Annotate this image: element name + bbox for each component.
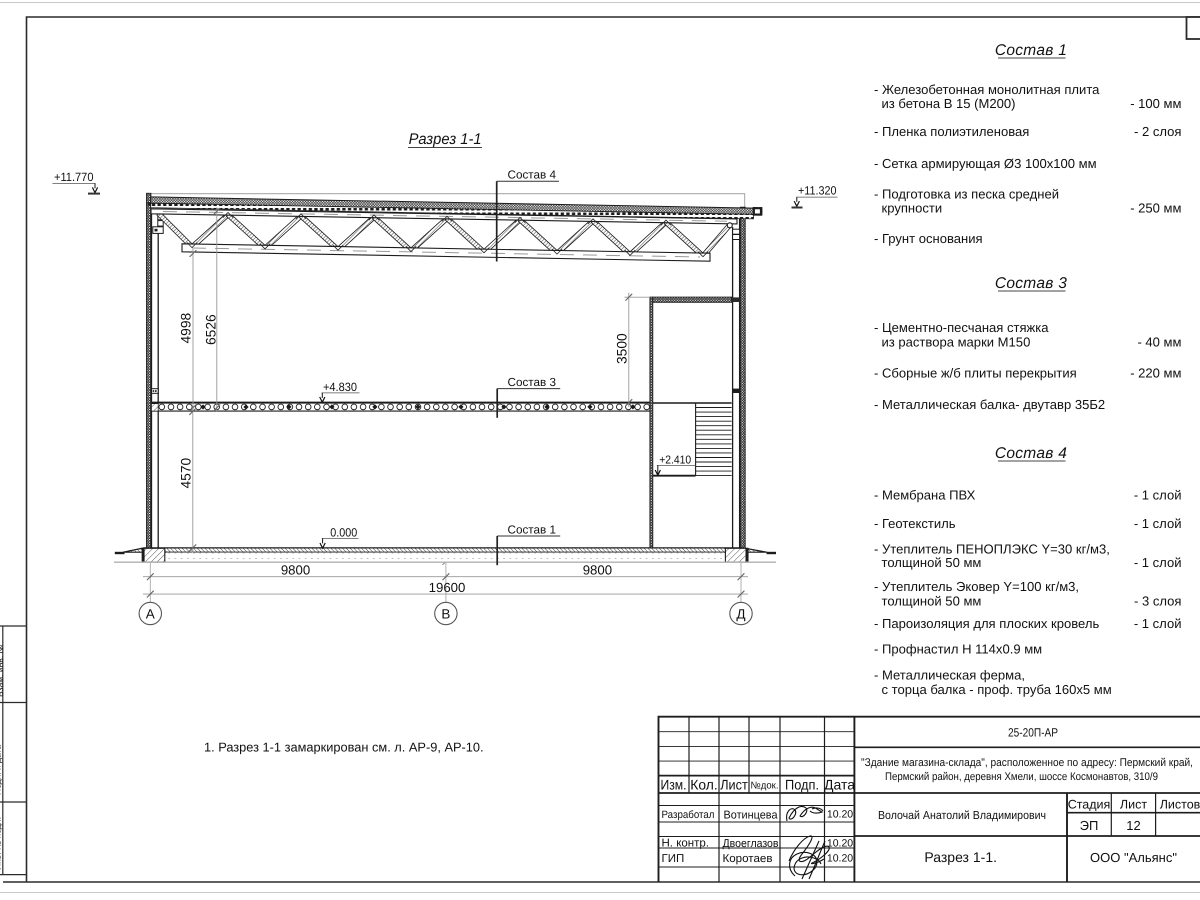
- svg-text:- Цементно-песчаная стяжка: - Цементно-песчаная стяжка: [874, 320, 1049, 335]
- svg-text:Стадия: Стадия: [1068, 798, 1111, 812]
- svg-text:- 220 мм: - 220 мм: [1130, 366, 1181, 381]
- svg-text:- Пленка полиэтиленовая: - Пленка полиэтиленовая: [874, 124, 1029, 139]
- svg-text:ООО "Альянс": ООО "Альянс": [1090, 850, 1177, 865]
- svg-text:12: 12: [1126, 818, 1140, 833]
- svg-text:- Подготовка из песка средней: - Подготовка из песка средней: [874, 187, 1059, 202]
- svg-text:- Железобетонная монолитная п: - Железобетонная монолитная плита: [874, 82, 1100, 97]
- svg-text:Состав 1: Состав 1: [995, 42, 1067, 59]
- svg-text:- Металлическая ферма,: - Металлическая ферма,: [874, 668, 1025, 683]
- svg-text:"Здание магазина-склада", расп: "Здание магазина-склада", расположенное …: [861, 757, 1193, 769]
- svg-text:- Утеплитель Эковер Y=100 кг/м: - Утеплитель Эковер Y=100 кг/м3,: [874, 579, 1079, 594]
- svg-text:- Сетка армирующая Ø3 100х100: - Сетка армирующая Ø3 100х100 мм: [874, 156, 1097, 171]
- svg-text:Двоеглазов: Двоеглазов: [723, 838, 779, 850]
- svg-text:ЭП: ЭП: [1080, 818, 1099, 833]
- svg-text:толщиной 50 мм: толщиной 50 мм: [882, 555, 982, 570]
- svg-text:- Мембрана ПВХ: - Мембрана ПВХ: [874, 488, 976, 503]
- svg-text:3500: 3500: [615, 333, 630, 364]
- svg-text:6526: 6526: [204, 314, 219, 345]
- svg-text:Дата: Дата: [824, 777, 855, 793]
- svg-text:19600: 19600: [429, 580, 466, 595]
- svg-text:- Металлическая балка- двутавр: - Металлическая балка- двутавр 35Б2: [874, 397, 1105, 412]
- svg-text:- 40 мм: - 40 мм: [1137, 334, 1181, 349]
- svg-text:- Геотекстиль: - Геотекстиль: [874, 516, 956, 531]
- svg-text:Лист: Лист: [720, 777, 748, 793]
- svg-text:0.000: 0.000: [330, 525, 357, 539]
- svg-text:10.20: 10.20: [827, 809, 853, 821]
- svg-text:- 3 слоя: - 3 слоя: [1134, 593, 1181, 608]
- svg-text:Состав 1: Состав 1: [508, 523, 556, 536]
- svg-text:- 2 слоя: - 2 слоя: [1134, 124, 1181, 139]
- svg-text:Пермский район, деревня Хмели,: Пермский район, деревня Хмели, шоссе Кос…: [885, 771, 1158, 783]
- svg-text:9800: 9800: [281, 563, 310, 578]
- svg-text:Кол.: Кол.: [690, 777, 718, 793]
- svg-text:- Пароизоляция для плоских кро: - Пароизоляция для плоских кровель: [874, 616, 1099, 631]
- svg-text:Волочай Анатолий Владимирович: Волочай Анатолий Владимирович: [878, 809, 1046, 822]
- svg-text:Лист: Лист: [1120, 798, 1147, 812]
- svg-text:Разработал: Разработал: [662, 809, 715, 821]
- svg-text:В: В: [441, 606, 450, 621]
- svg-text:Состав 4: Состав 4: [508, 169, 557, 182]
- svg-text:Н. контр.: Н. контр.: [662, 838, 709, 850]
- svg-text:крупности: крупности: [882, 201, 943, 216]
- svg-text:Подп. и дата: Подп. и дата: [0, 745, 2, 795]
- svg-text:Коротаев: Коротаев: [723, 853, 773, 865]
- svg-text:- Грунт основания: - Грунт основания: [874, 231, 983, 246]
- svg-text:толщиной 50 мм: толщиной 50 мм: [882, 593, 982, 608]
- svg-text:4570: 4570: [179, 457, 194, 488]
- svg-text:Д: Д: [736, 606, 745, 621]
- svg-text:из раствора марки М150: из раствора марки М150: [882, 334, 1031, 349]
- svg-text:Состав 3: Состав 3: [508, 376, 556, 389]
- svg-text:Инв. № подл.: Инв. № подл.: [0, 817, 2, 870]
- svg-text:+2.410: +2.410: [659, 454, 691, 466]
- svg-text:10.20: 10.20: [827, 838, 853, 850]
- svg-text:- 1 слой: - 1 слой: [1134, 488, 1182, 503]
- svg-text:+11.320: +11.320: [798, 184, 837, 198]
- svg-text:+4.830: +4.830: [323, 380, 357, 394]
- svg-text:Разрез 1-1: Разрез 1-1: [409, 131, 482, 148]
- svg-text:с торца балка - проф. труба 16: с торца балка - проф. труба 160х5 мм: [882, 682, 1112, 697]
- svg-text:10.20: 10.20: [827, 853, 853, 865]
- svg-text:Взам. инв. №: Взам. инв. №: [0, 644, 5, 697]
- svg-text:Изм.: Изм.: [661, 777, 687, 793]
- svg-text:ГИП: ГИП: [662, 853, 685, 865]
- svg-text:4998: 4998: [179, 312, 194, 343]
- svg-text:1. Разрез 1-1 замаркирован см.: 1. Разрез 1-1 замаркирован см. л. АР-9, …: [204, 740, 484, 755]
- svg-text:№док.: №док.: [751, 781, 779, 792]
- svg-text:- 100 мм: - 100 мм: [1130, 96, 1181, 111]
- svg-text:из бетона В 15 (М200): из бетона В 15 (М200): [882, 96, 1016, 111]
- svg-text:- 1 слой: - 1 слой: [1134, 555, 1182, 570]
- svg-text:Вотинцева: Вотинцева: [724, 810, 779, 822]
- svg-text:Состав 4: Состав 4: [995, 445, 1067, 462]
- svg-text:25-20П-АР: 25-20П-АР: [1008, 726, 1058, 740]
- svg-text:Листов: Листов: [1160, 798, 1200, 812]
- svg-text:Подп.: Подп.: [785, 777, 819, 793]
- svg-text:- 1 слой: - 1 слой: [1134, 516, 1182, 531]
- svg-text:А: А: [146, 606, 155, 621]
- svg-text:9800: 9800: [583, 563, 612, 578]
- svg-text:Разрез 1-1.: Разрез 1-1.: [924, 849, 997, 865]
- svg-text:- Профнастил Н 114х0.9 мм: - Профнастил Н 114х0.9 мм: [874, 642, 1042, 657]
- svg-text:Состав 3: Состав 3: [995, 275, 1067, 292]
- svg-text:- 1 слой: - 1 слой: [1134, 616, 1182, 631]
- svg-text:- 250 мм: - 250 мм: [1130, 201, 1181, 216]
- svg-text:+11.770: +11.770: [54, 170, 94, 184]
- svg-text:- Сборные ж/б плиты перекрытия: - Сборные ж/б плиты перекрытия: [874, 366, 1077, 381]
